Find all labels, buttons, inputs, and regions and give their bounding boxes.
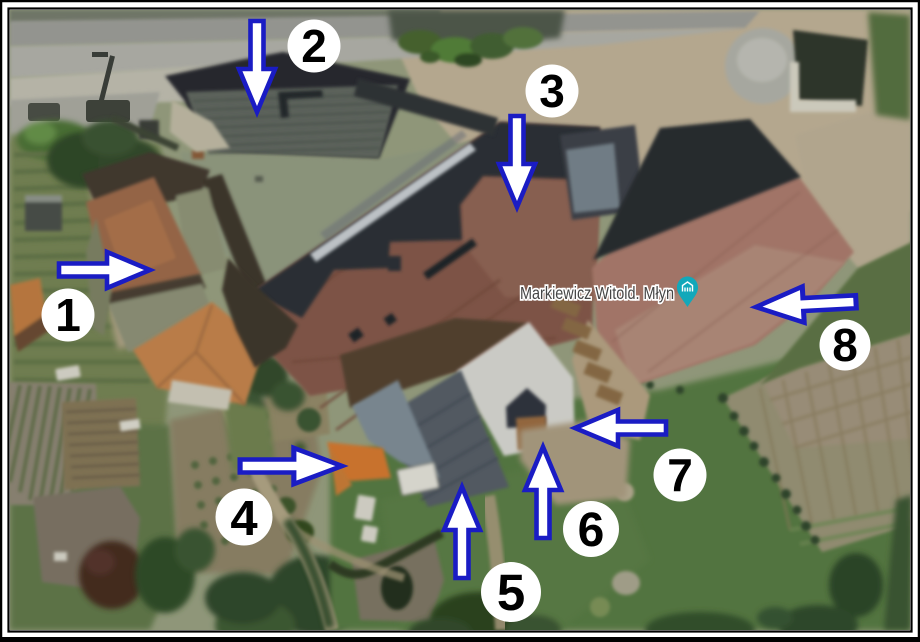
svg-text:5: 5 <box>497 564 525 621</box>
svg-text:Markiewicz Witold. Młyn: Markiewicz Witold. Młyn <box>520 283 674 303</box>
svg-text:3: 3 <box>539 65 565 117</box>
svg-text:4: 4 <box>230 492 257 546</box>
svg-text:8: 8 <box>832 319 858 371</box>
svg-text:6: 6 <box>578 504 605 557</box>
svg-text:1: 1 <box>55 289 81 341</box>
svg-text:2: 2 <box>301 20 327 72</box>
svg-text:7: 7 <box>667 449 693 501</box>
